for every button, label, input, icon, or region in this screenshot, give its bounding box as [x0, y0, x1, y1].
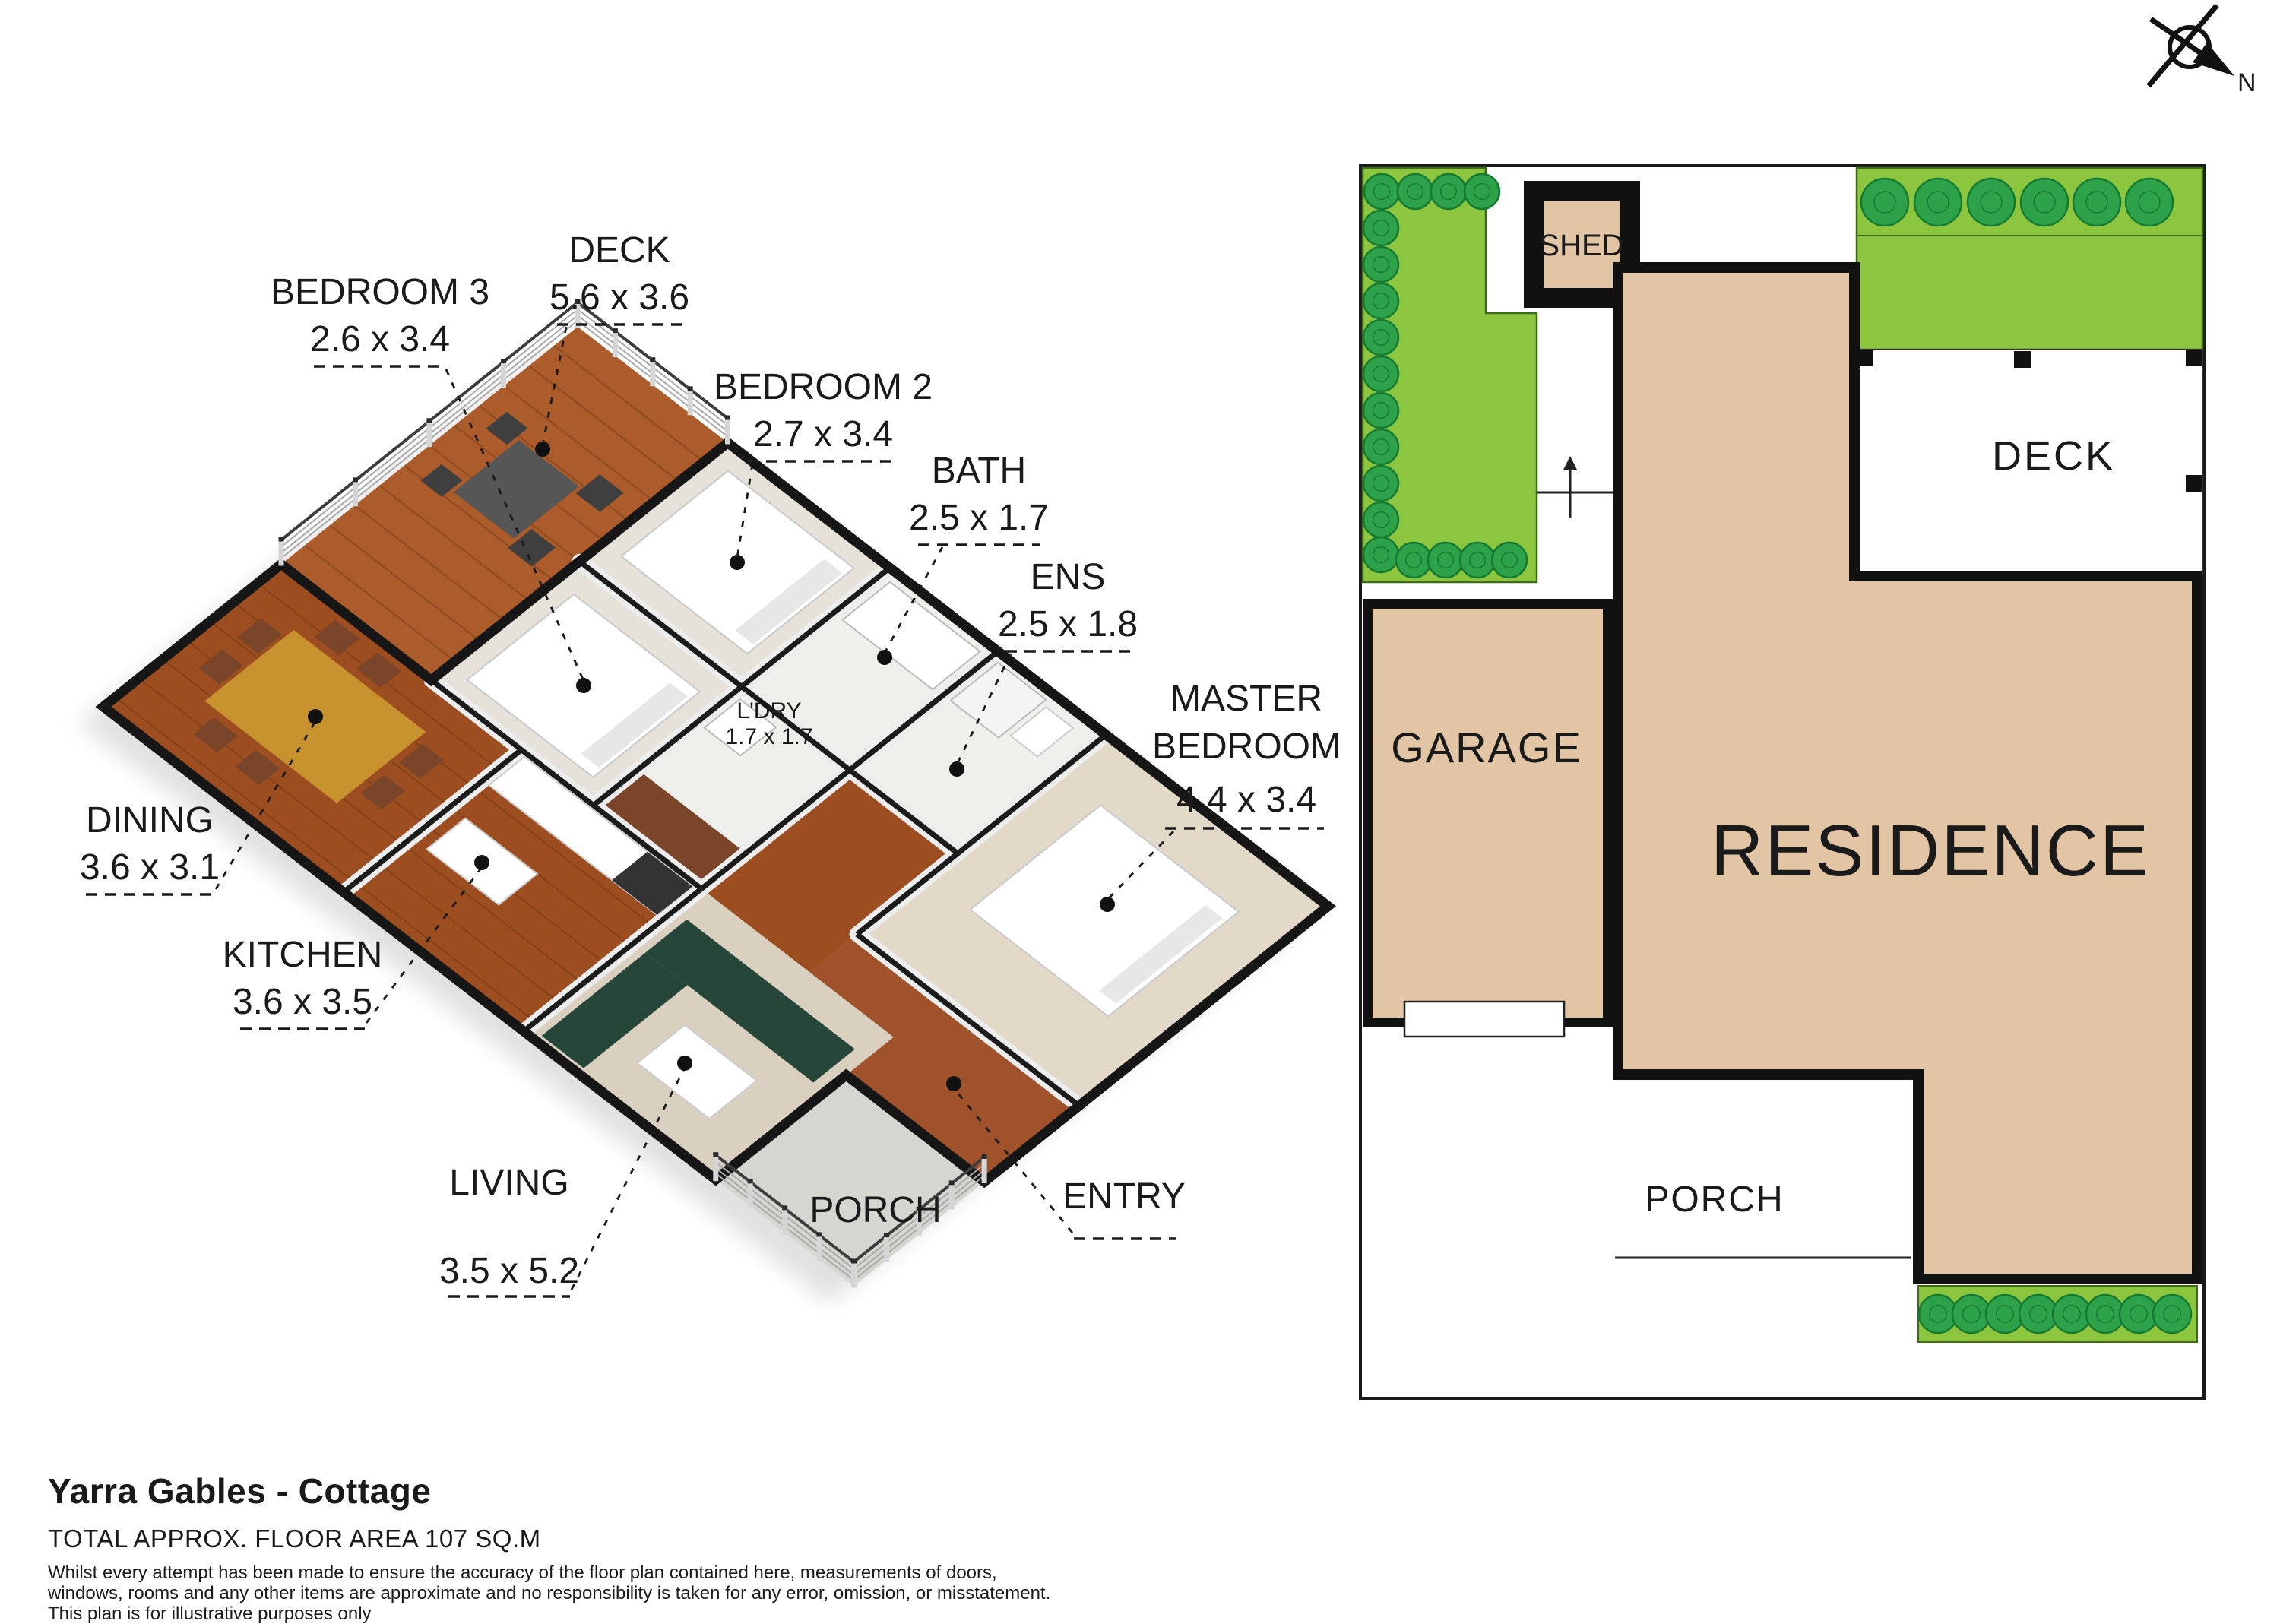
label-dot — [677, 1056, 692, 1071]
label-dot — [535, 442, 550, 457]
tree-icon — [1363, 502, 1398, 537]
tree-icon — [1363, 393, 1398, 428]
compass-icon: N — [2149, 5, 2256, 97]
label-dot — [308, 709, 323, 724]
label-dot — [730, 555, 745, 570]
site-plan: SHEDDECKRESIDENCEGARAGEPORCH — [1360, 166, 2204, 1398]
disclaimer-line: windows, rooms and any other items are a… — [48, 1583, 1416, 1603]
compass-north-label: N — [2237, 68, 2256, 97]
tree-icon — [1492, 543, 1527, 578]
tree-icon — [1428, 543, 1463, 578]
room-dims-text: 2.5 x 1.8 — [998, 604, 1138, 644]
garage-label: GARAGE — [1391, 723, 1582, 771]
tree-icon — [1968, 179, 2015, 226]
room-dims-text: 3.6 x 3.1 — [80, 847, 220, 888]
tree-icon — [1986, 1295, 2024, 1333]
room-label-text: ENS — [1031, 557, 1106, 597]
room-label-text: DECK — [568, 230, 670, 271]
deck-post — [2186, 350, 2202, 366]
tree-icon — [1363, 429, 1398, 464]
tree-icon — [2021, 179, 2068, 226]
room-label-text: LIVING — [449, 1163, 568, 1203]
tree-icon — [2019, 1295, 2057, 1333]
label-dot — [877, 650, 892, 665]
room-label-text: KITCHEN — [223, 935, 383, 975]
disclaimer-line: This plan is for illustrative purposes o… — [48, 1603, 1416, 1624]
room-dims-text: 2.7 x 3.4 — [753, 414, 893, 454]
room-label-text: L'DRY — [736, 698, 801, 723]
room-label-text: DINING — [86, 800, 214, 840]
room-dims-text: 3.5 x 5.2 — [439, 1251, 579, 1291]
tree-icon — [1861, 179, 1908, 226]
tree-icon — [2153, 1295, 2191, 1333]
room-label-text: BEDROOM 2 — [714, 367, 933, 407]
shed-label: SHED — [1539, 229, 1623, 262]
room-label: PORCH — [809, 1190, 941, 1230]
tree-icon — [1363, 247, 1398, 282]
tree-icon — [1363, 320, 1398, 355]
deck-post — [2014, 351, 2031, 368]
tree-icon — [1431, 174, 1466, 209]
room-dims-text: 3.6 x 3.5 — [233, 982, 372, 1022]
room-dims-text: 5.6 x 3.6 — [549, 277, 689, 318]
tree-icon — [1465, 174, 1499, 209]
tree-icon — [2073, 179, 2120, 226]
tree-icon — [2086, 1295, 2124, 1333]
room-dims-text: 1.7 x 1.7 — [725, 724, 812, 749]
deck-post — [2186, 475, 2202, 492]
tree-icon — [1460, 543, 1495, 578]
room-label-text: ENTRY — [1062, 1176, 1186, 1217]
label-dot — [576, 678, 591, 693]
disclaimer-text: Whilst every attempt has been made to en… — [48, 1562, 1416, 1624]
floorplan-page: BEDROOM 32.6 x 3.4DECK5.6 x 3.6BEDROOM 2… — [0, 0, 2280, 1613]
room-dims-text: 2.5 x 1.7 — [909, 498, 1049, 538]
tree-icon — [1363, 356, 1398, 391]
label-dot — [949, 761, 964, 777]
floor-area-text: TOTAL APPROX. FLOOR AREA 107 SQ.M — [48, 1524, 1416, 1553]
label-dot — [1100, 897, 1115, 912]
tree-icon — [1919, 1295, 1957, 1333]
room-label-text: MASTER — [1170, 679, 1322, 719]
tree-icon — [1363, 211, 1398, 245]
label-dot — [946, 1076, 961, 1091]
residence-label: RESIDENCE — [1711, 810, 2150, 891]
tree-icon — [1363, 466, 1398, 501]
tree-icon — [2126, 179, 2173, 226]
tree-icon — [1952, 1295, 1990, 1333]
tree-icon — [1398, 174, 1433, 209]
room-label: L'DRY1.7 x 1.7 — [725, 698, 812, 749]
label-dot — [474, 855, 489, 870]
plan-title: Yarra Gables - Cottage — [48, 1470, 1416, 1512]
site-deck-label: DECK — [1992, 433, 2115, 479]
tree-icon — [1914, 179, 1962, 226]
tree-icon — [2120, 1295, 2158, 1333]
room-label-text: PORCH — [809, 1190, 941, 1230]
tree-icon — [1363, 537, 1398, 572]
disclaimer-line: Whilst every attempt has been made to en… — [48, 1562, 1416, 1583]
site-porch-label: PORCH — [1645, 1179, 1784, 1220]
tree-icon — [1363, 283, 1398, 318]
room-label-text: BATH — [932, 451, 1026, 491]
floorplan-image: BEDROOM 32.6 x 3.4DECK5.6 x 3.6BEDROOM 2… — [0, 0, 2280, 1613]
title-block: Yarra Gables - Cottage TOTAL APPROX. FLO… — [48, 1470, 1416, 1624]
tree-icon — [2053, 1295, 2091, 1333]
3d-floorplan: BEDROOM 32.6 x 3.4DECK5.6 x 3.6BEDROOM 2… — [79, 230, 1341, 1303]
garage-door — [1404, 1002, 1564, 1037]
garage-footprint — [1368, 604, 1608, 1023]
room-dims-text: 4.4 x 3.4 — [1176, 780, 1316, 820]
room-label-text: BEDROOM 3 — [271, 272, 489, 312]
compass-north-arrow — [2193, 43, 2234, 76]
room-label-text2: BEDROOM — [1152, 727, 1341, 767]
room-dims-text: 2.6 x 3.4 — [310, 319, 450, 359]
tree-icon — [1396, 543, 1431, 578]
tree-icon — [1364, 174, 1399, 209]
